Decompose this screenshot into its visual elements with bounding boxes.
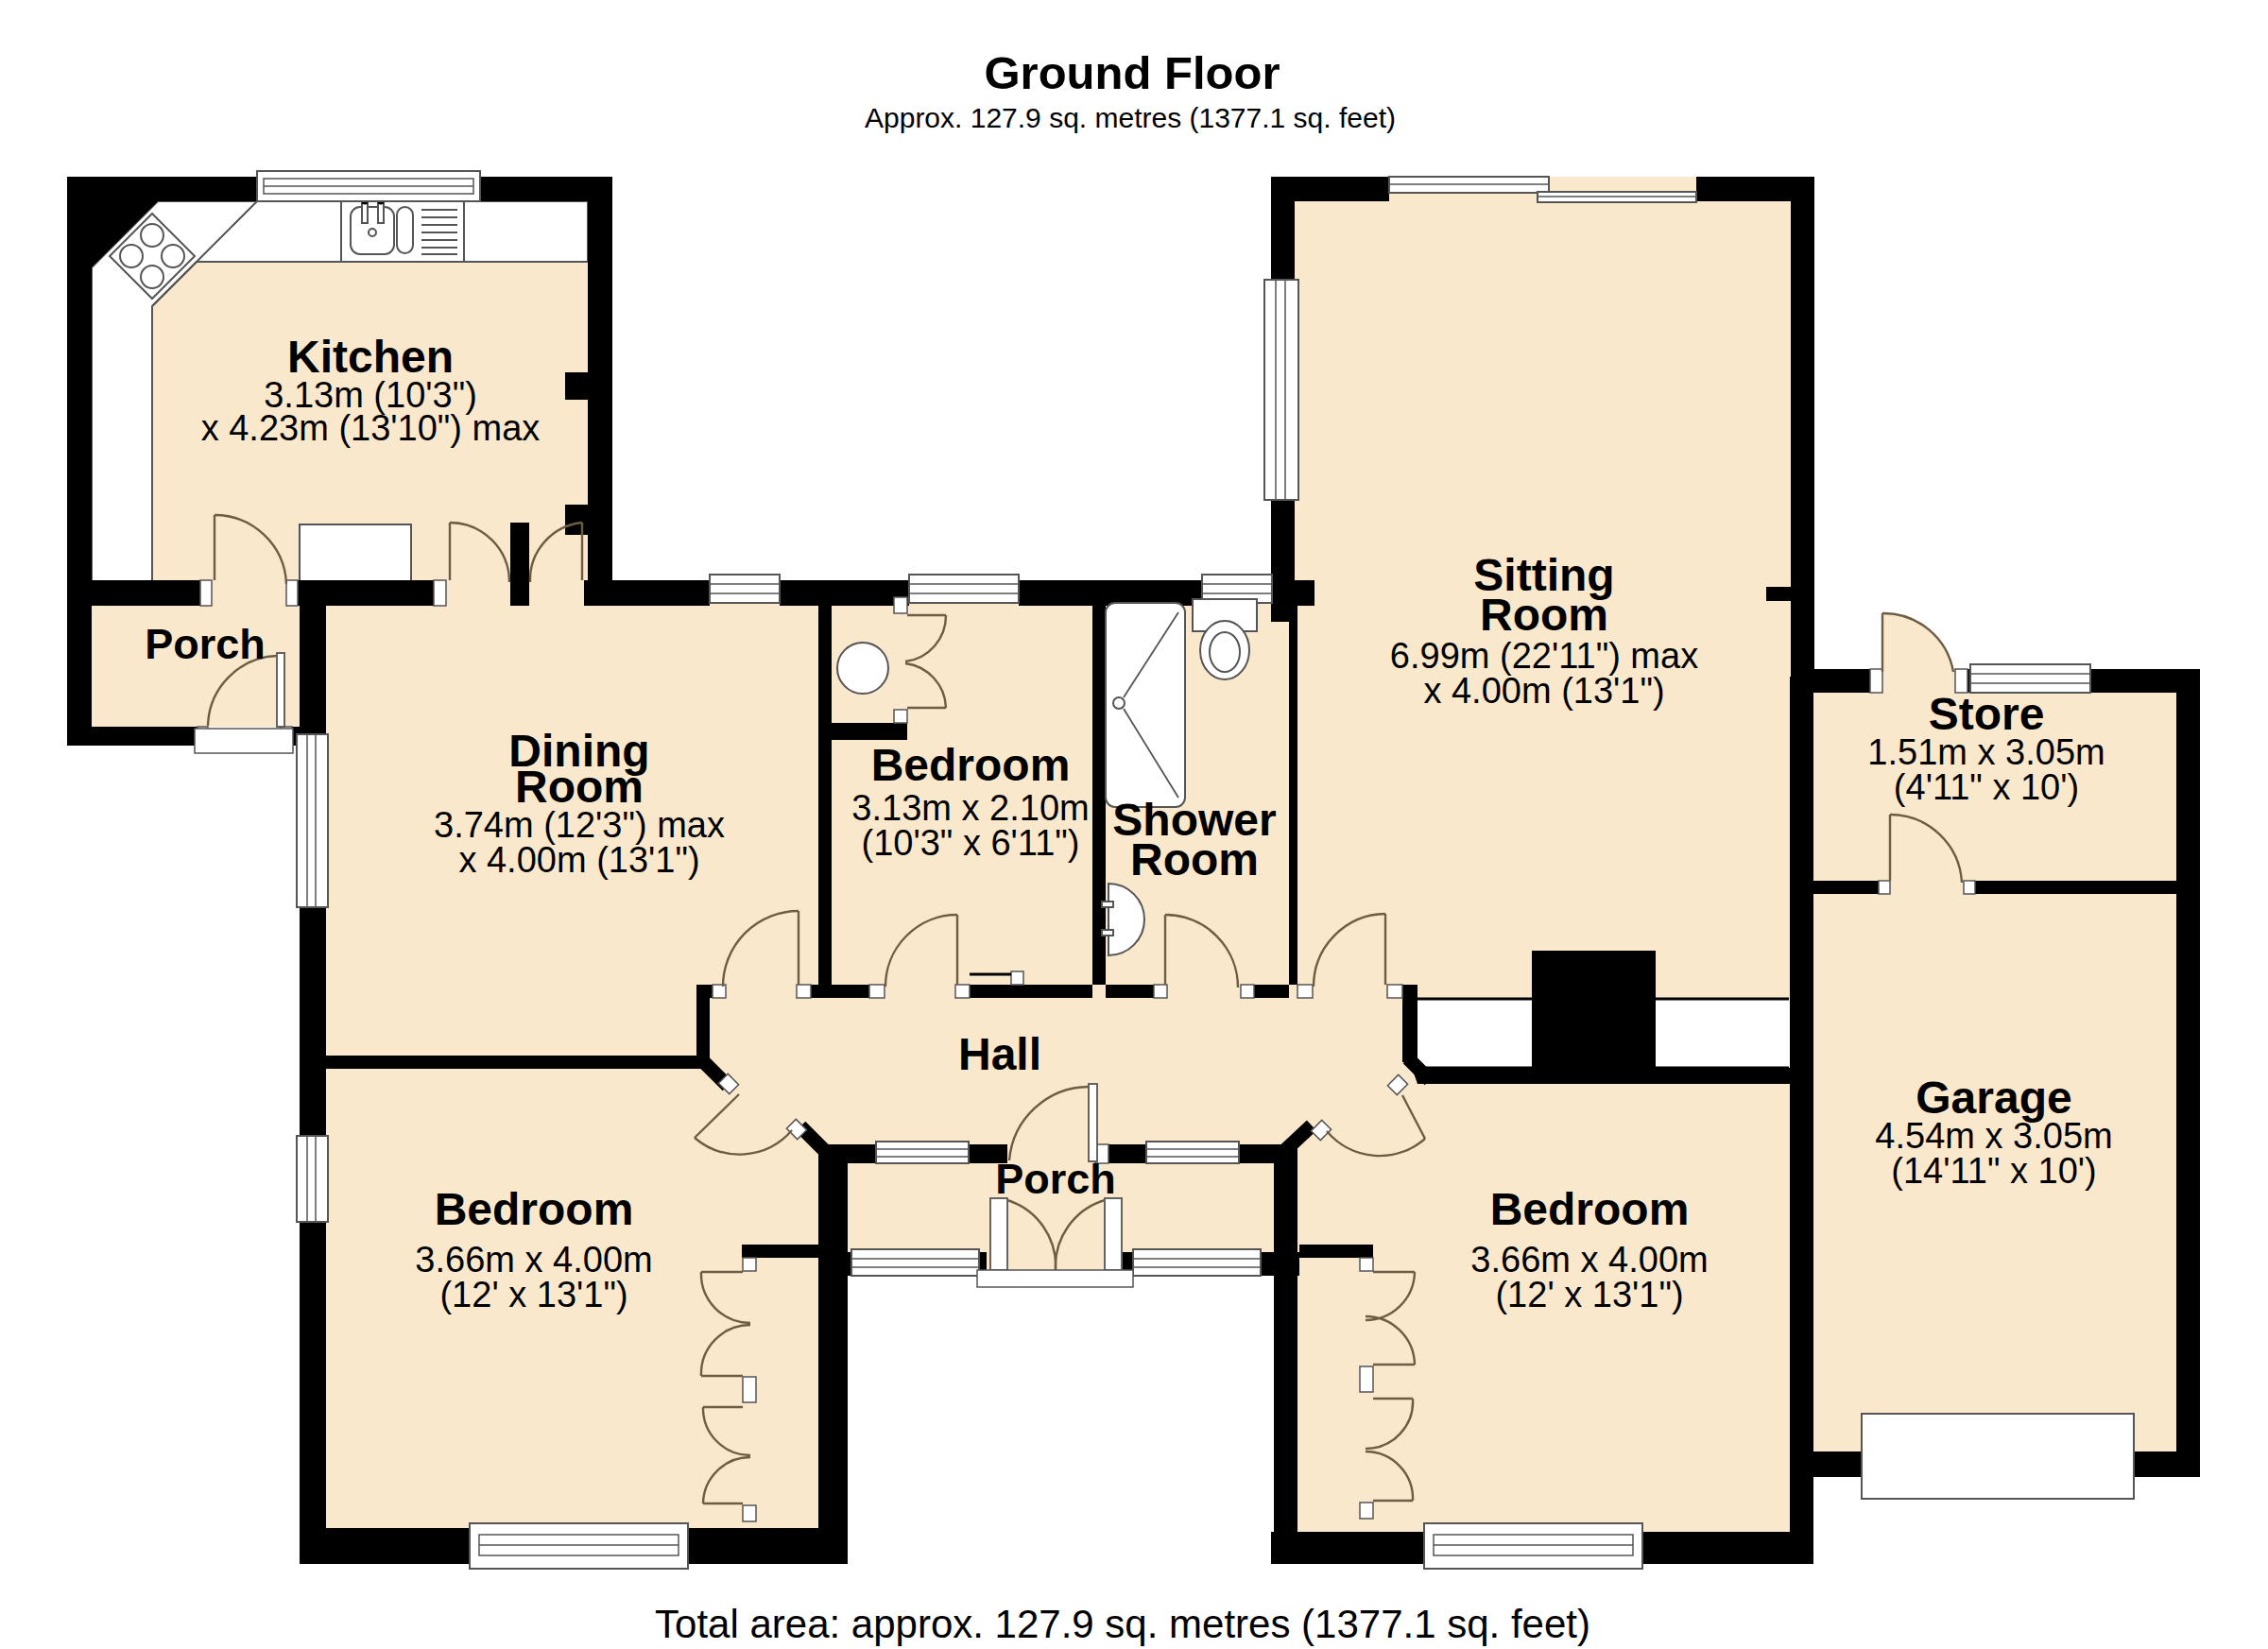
svg-text:3.13m x 2.10m: 3.13m x 2.10m xyxy=(851,788,1089,828)
svg-text:(12' x 13'1"): (12' x 13'1") xyxy=(439,1275,627,1314)
svg-text:Room: Room xyxy=(1130,834,1259,885)
svg-text:6.99m (22'11") max: 6.99m (22'11") max xyxy=(1390,636,1698,676)
svg-text:1.51m x 3.05m: 1.51m x 3.05m xyxy=(1867,732,2105,772)
svg-text:Bedroom: Bedroom xyxy=(1490,1184,1690,1234)
svg-text:Hall: Hall xyxy=(958,1029,1041,1079)
svg-text:x 4.23m (13'10") max: x 4.23m (13'10") max xyxy=(201,408,541,448)
svg-text:3.74m (12'3") max: 3.74m (12'3") max xyxy=(434,805,725,845)
svg-text:Bedroom: Bedroom xyxy=(435,1184,634,1234)
svg-text:x 4.00m (13'1"): x 4.00m (13'1") xyxy=(458,840,699,880)
svg-text:(14'11" x 10'): (14'11" x 10') xyxy=(1891,1151,2096,1191)
svg-text:3.66m x 4.00m: 3.66m x 4.00m xyxy=(1470,1240,1708,1280)
svg-text:Room: Room xyxy=(1480,590,1608,640)
svg-text:4.54m x 3.05m: 4.54m x 3.05m xyxy=(1875,1116,2112,1156)
svg-text:(12' x 13'1"): (12' x 13'1") xyxy=(1495,1275,1683,1314)
svg-text:3.66m x 4.00m: 3.66m x 4.00m xyxy=(415,1240,652,1280)
svg-text:Ground Floor: Ground Floor xyxy=(985,47,1280,98)
svg-text:Total area: approx. 127.9 sq.: Total area: approx. 127.9 sq. metres (13… xyxy=(655,1602,1590,1646)
svg-text:(4'11" x 10'): (4'11" x 10') xyxy=(1894,767,2079,807)
svg-text:(10'3" x 6'11"): (10'3" x 6'11") xyxy=(862,823,1080,863)
svg-text:Porch: Porch xyxy=(145,620,266,668)
svg-text:Approx. 127.9 sq. metres (1377: Approx. 127.9 sq. metres (1377.1 sq. fee… xyxy=(865,102,1396,133)
svg-text:Bedroom: Bedroom xyxy=(871,740,1071,790)
svg-text:Porch: Porch xyxy=(995,1155,1116,1203)
svg-text:x 4.00m (13'1"): x 4.00m (13'1") xyxy=(1423,671,1664,711)
